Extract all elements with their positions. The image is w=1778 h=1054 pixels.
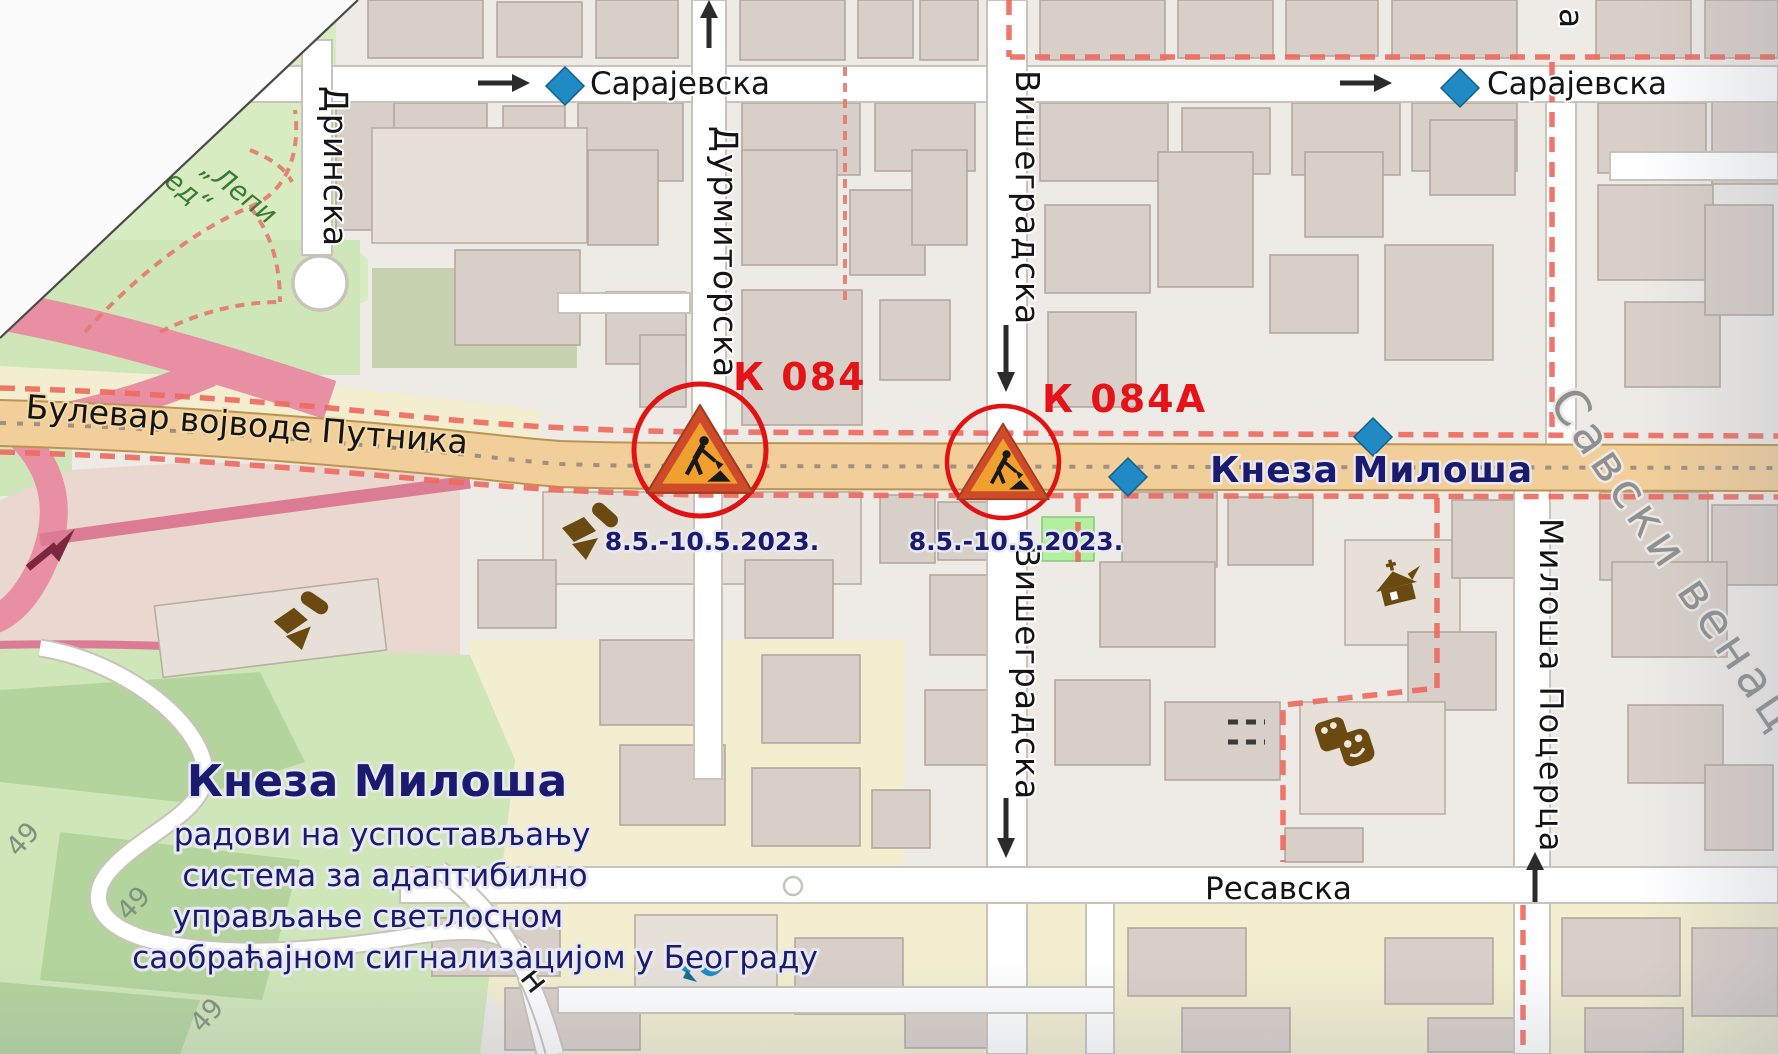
street-label-drinska: Дринска	[316, 86, 355, 248]
annotation-line: радови на успостављању	[174, 817, 591, 853]
map-svg: Сарајевска Сарајевска Дурмиторска Вишегр…	[0, 0, 1778, 1054]
street-stub-label: а	[1552, 8, 1591, 30]
annotation-line: система за адаптибилно	[182, 858, 587, 894]
annotation-line: управљање светлосном	[173, 899, 563, 935]
edge-shade	[0, 960, 1778, 1054]
edge-shade	[1640, 0, 1778, 1054]
work-date-k084: 8.5.-10.5.2023.	[605, 527, 819, 556]
street-label-visegradska-bottom: Вишеградска	[1008, 545, 1047, 801]
street-label-durmitorska: Дурмиторска	[706, 126, 745, 379]
work-code-k084a: К 084А	[1042, 377, 1207, 421]
street-label-visegradska-top: Вишеградска	[1008, 70, 1047, 326]
mini-roundabout	[784, 877, 802, 895]
annotation-title: Кнеза Милоша	[187, 756, 567, 807]
street-label-milosa-pocerca: Милоша Поцерца	[1532, 518, 1570, 854]
work-code-k084: К 084	[733, 355, 867, 399]
cul-de-sac	[293, 256, 347, 310]
map-canvas: Сарајевска Сарајевска Дурмиторска Вишегр…	[0, 0, 1778, 1054]
road-label-kneza-milosa: Кнеза Милоша	[1210, 450, 1533, 491]
street-label-resavska: Ресавска	[1205, 871, 1352, 907]
street-label-sarajevska-left: Сарајевска	[590, 66, 770, 102]
work-date-k084a: 8.5.-10.5.2023.	[909, 527, 1123, 556]
